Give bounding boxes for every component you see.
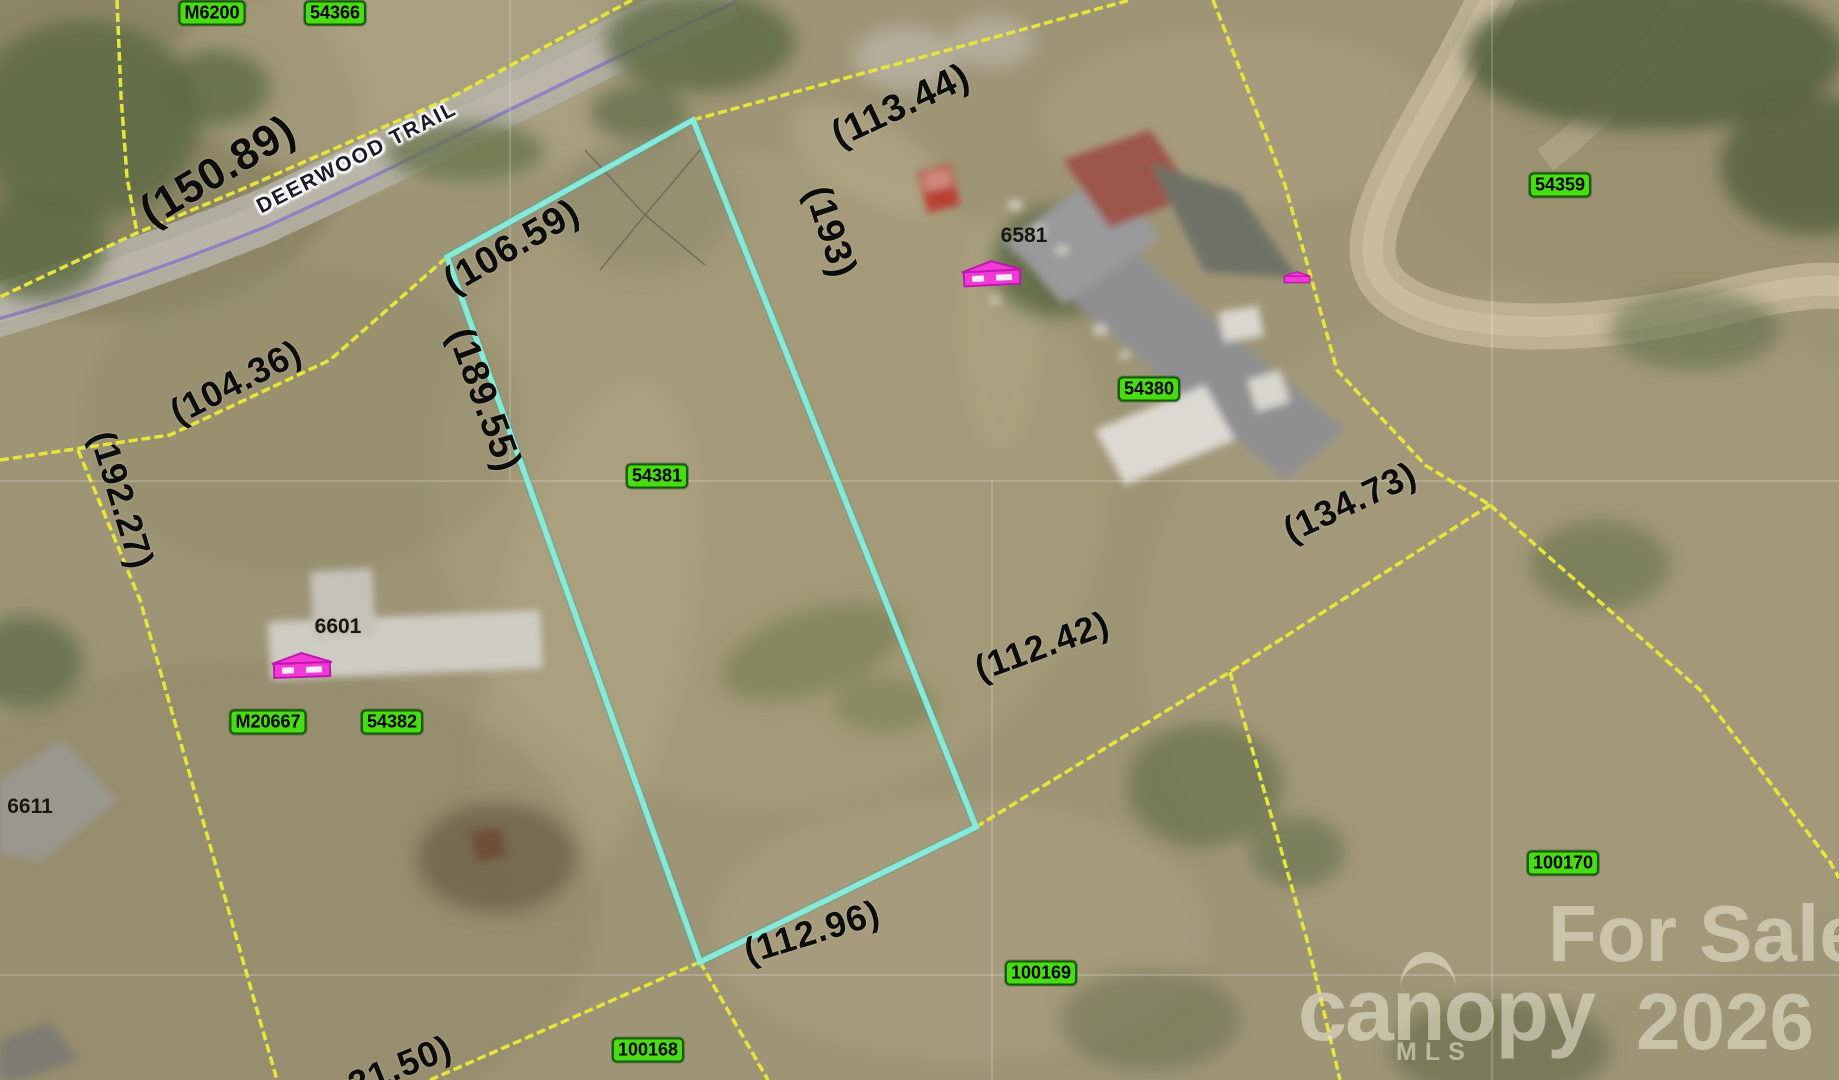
map-canvas[interactable]: M62005436654359543805438154382M206671001…: [0, 0, 1839, 1080]
parcel-id-label: 54359: [1529, 173, 1591, 198]
parcel-id-label: M20667: [229, 710, 306, 735]
parcel-id-label: 100168: [612, 1038, 684, 1063]
year-watermark: 2026: [1636, 982, 1814, 1062]
parcel-id-label: 100170: [1527, 851, 1599, 876]
parcel-id-label: 54382: [361, 710, 423, 735]
parcel-id-label: 54380: [1118, 377, 1180, 402]
address-label: 6581: [1001, 224, 1048, 248]
address-label: 6611: [7, 795, 53, 819]
parcel-id-label: 54381: [626, 464, 688, 489]
parcel-id-label: 100169: [1005, 961, 1077, 986]
vehicle: [1218, 306, 1264, 342]
parcel-id-label: M6200: [178, 1, 245, 26]
address-label: 6601: [315, 615, 362, 639]
mls-watermark: MLS: [1396, 1040, 1473, 1065]
parcel-id-label: 54366: [304, 1, 366, 26]
